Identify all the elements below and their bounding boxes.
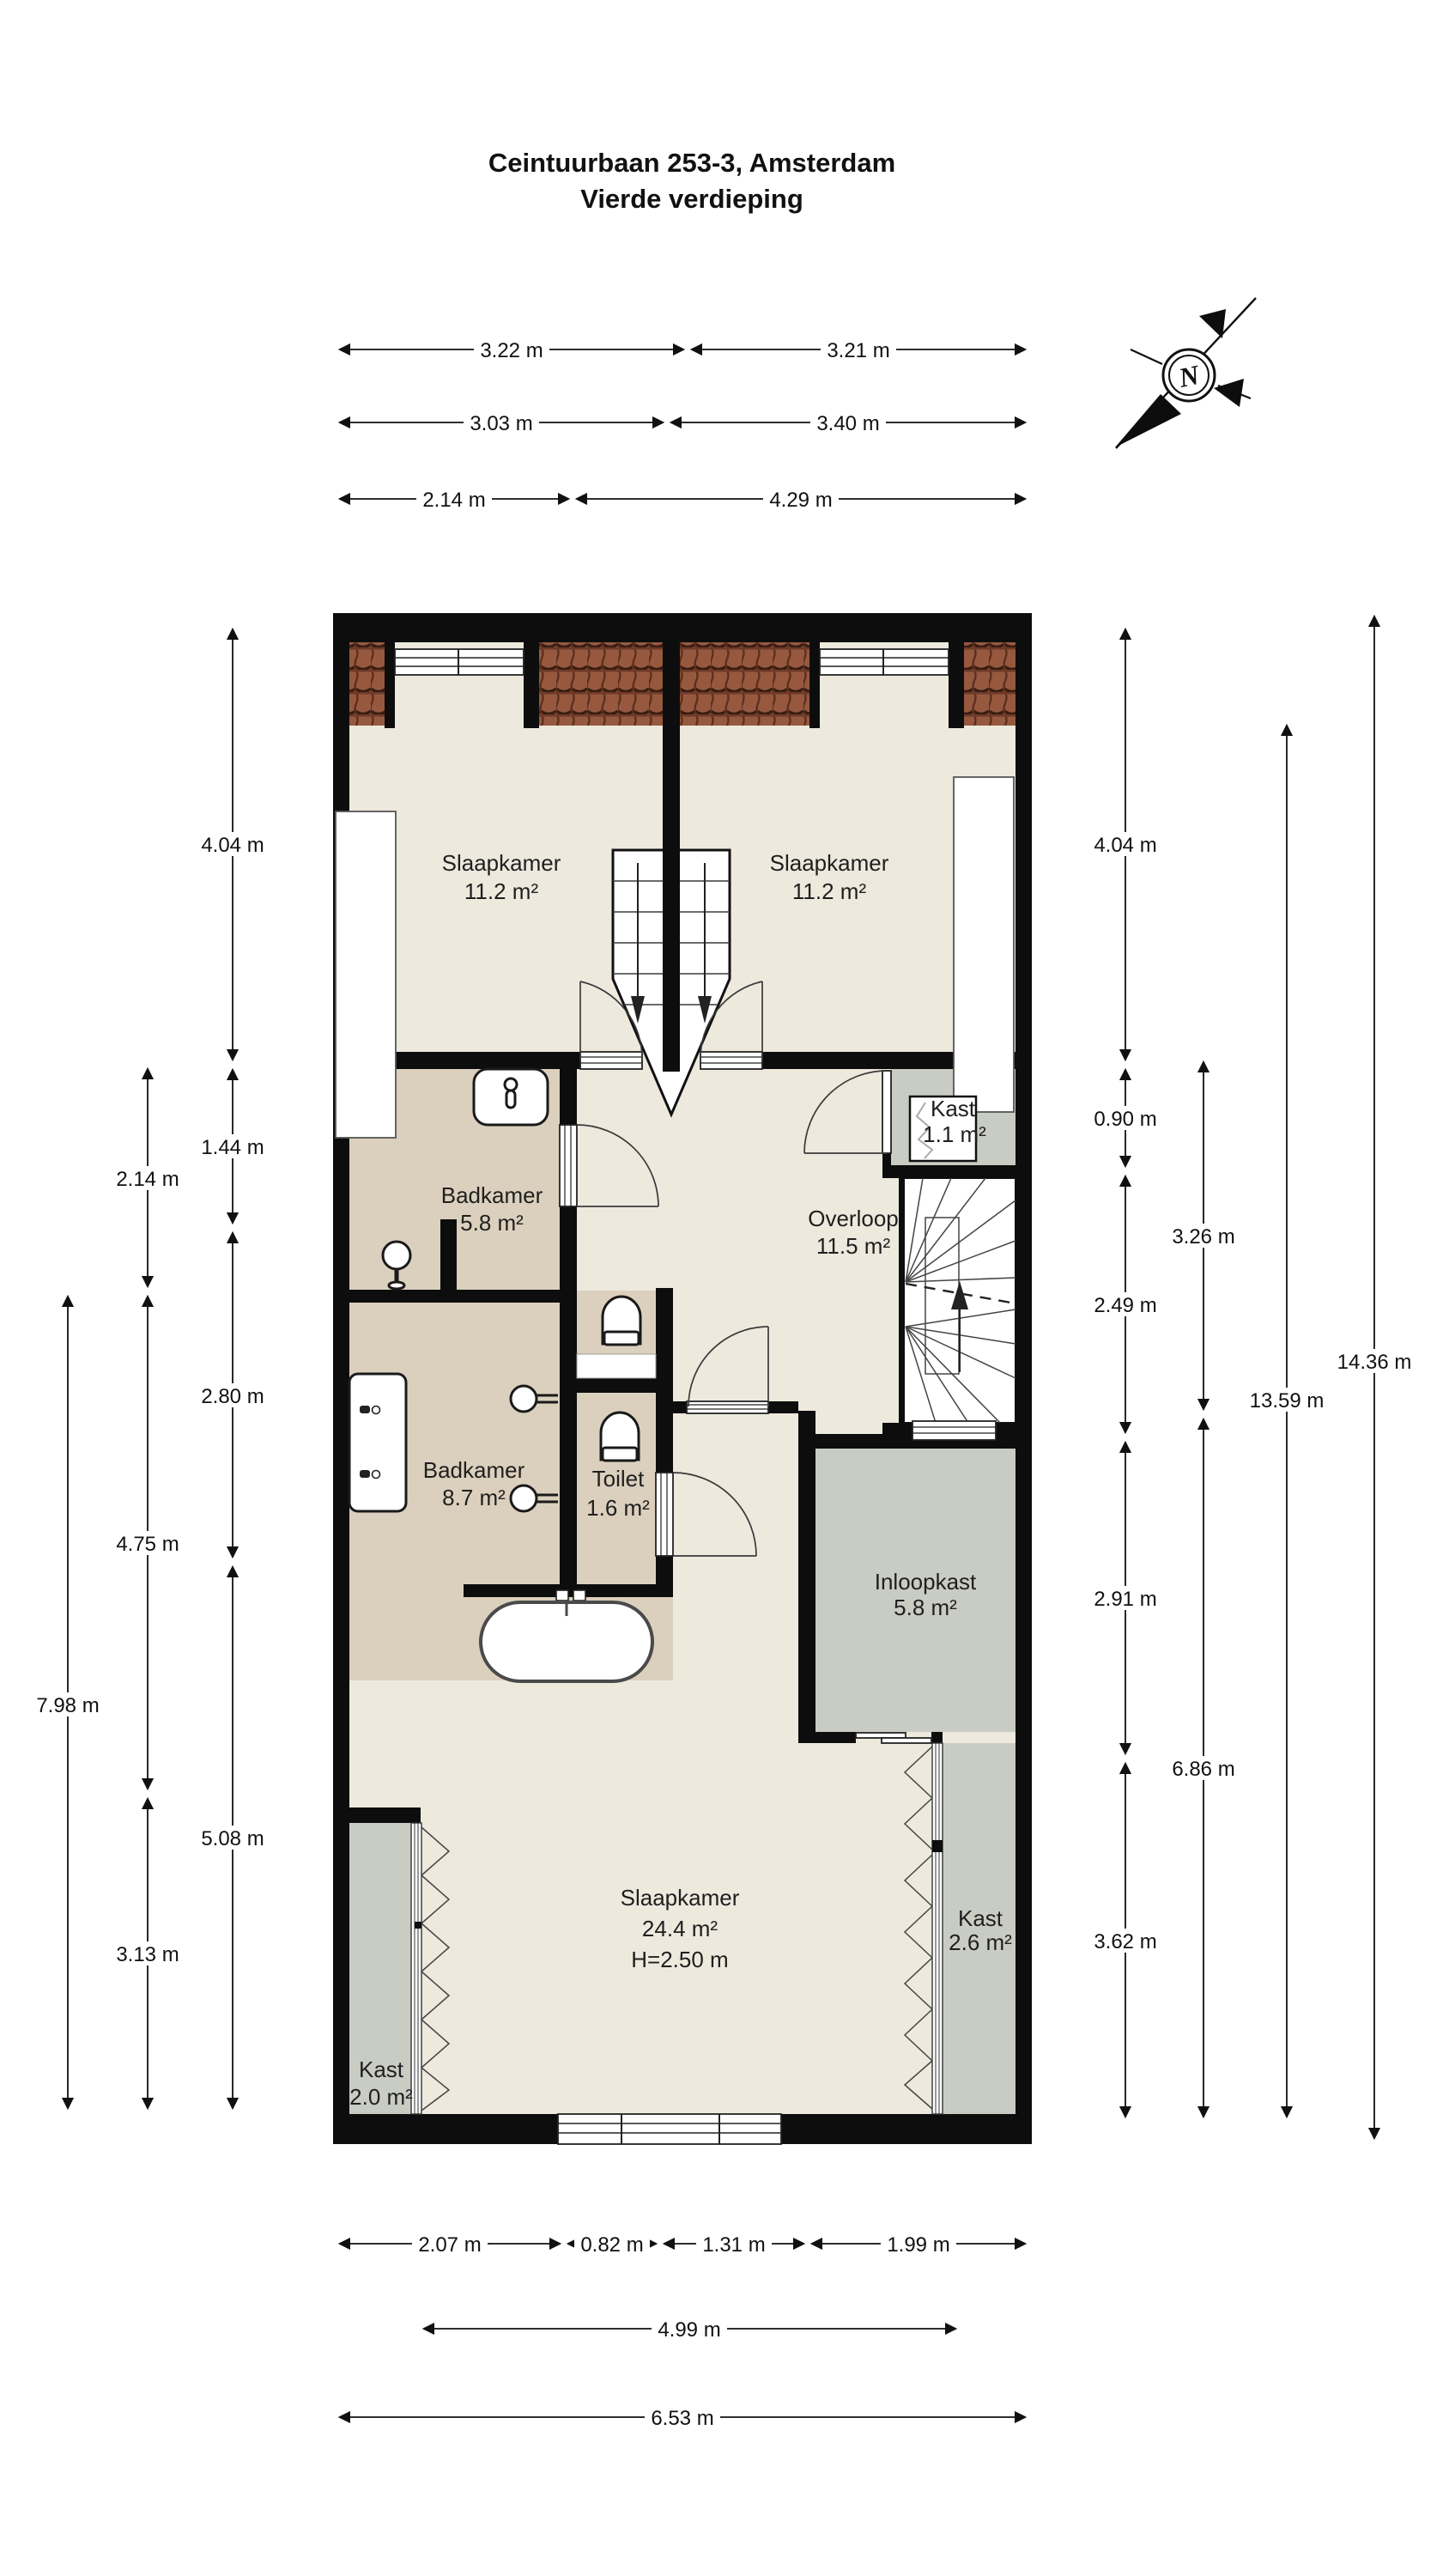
dim-bottom-6.53: 6.53 m bbox=[340, 2405, 1025, 2430]
svg-text:6.86 m: 6.86 m bbox=[1172, 1758, 1234, 1781]
dim-top-1: 3.22 m bbox=[340, 337, 683, 362]
svg-text:4.75 m: 4.75 m bbox=[116, 1533, 179, 1556]
svg-text:4.29 m: 4.29 m bbox=[769, 489, 832, 512]
label-slaapkamer-groot-height: H=2.50 m bbox=[631, 1947, 728, 1972]
dim-left-2.14: 2.14 m bbox=[110, 1069, 185, 1286]
label-kast-klein-name: Kast bbox=[931, 1096, 976, 1121]
svg-text:2.91 m: 2.91 m bbox=[1094, 1588, 1156, 1611]
label-badkamer-groot-area: 8.7 m² bbox=[442, 1485, 506, 1510]
dim-top-6: 4.29 m bbox=[577, 487, 1025, 512]
dimensions-right: 4.04 m 0.90 m 2.49 m 2.91 m 3.62 m 3.26 … bbox=[1088, 617, 1421, 2138]
label-toilet-area: 1.6 m² bbox=[586, 1495, 650, 1521]
dim-left-4.75: 4.75 m bbox=[110, 1297, 185, 1789]
svg-text:6.53 m: 6.53 m bbox=[651, 2407, 713, 2430]
dim-right-3.62: 3.62 m bbox=[1088, 1764, 1163, 2117]
label-kast-rechts-name: Kast bbox=[958, 1905, 1003, 1931]
dim-left-2.80: 2.80 m bbox=[195, 1233, 270, 1557]
label-slaapkamer-links-area: 11.2 m² bbox=[464, 878, 539, 904]
page-title-line1: Ceintuurbaan 253-3, Amsterdam bbox=[488, 148, 895, 178]
svg-text:7.98 m: 7.98 m bbox=[36, 1694, 99, 1717]
dormer-window-left bbox=[395, 649, 524, 675]
vanity-icon bbox=[349, 1374, 406, 1511]
winder-stairs bbox=[904, 1178, 1016, 1423]
dim-bottom-2.07: 2.07 m bbox=[340, 2232, 560, 2257]
svg-text:0.90 m: 0.90 m bbox=[1094, 1108, 1156, 1131]
label-badkamer-klein-area: 5.8 m² bbox=[460, 1210, 524, 1236]
label-overloop-name: Overloop bbox=[808, 1206, 899, 1231]
label-slaapkamer-rechts-name: Slaapkamer bbox=[770, 850, 889, 876]
label-kast-links-name: Kast bbox=[359, 2057, 404, 2082]
label-slaapkamer-groot-name: Slaapkamer bbox=[621, 1885, 740, 1911]
dim-right-2.91: 2.91 m bbox=[1088, 1443, 1163, 1753]
label-badkamer-groot-name: Badkamer bbox=[423, 1457, 525, 1483]
svg-text:3.03 m: 3.03 m bbox=[470, 412, 532, 435]
svg-text:1.44 m: 1.44 m bbox=[201, 1136, 264, 1159]
svg-text:3.13 m: 3.13 m bbox=[116, 1943, 179, 1966]
label-kast-links-area: 2.0 m² bbox=[349, 2084, 413, 2110]
dimensions-left: 4.04 m 1.44 m 2.80 m 5.08 m 2.14 m 4.75 … bbox=[30, 629, 270, 2108]
label-kast-rechts-area: 2.6 m² bbox=[949, 1929, 1012, 1955]
label-badkamer-klein-name: Badkamer bbox=[441, 1182, 543, 1208]
compass-icon: N bbox=[1115, 298, 1256, 448]
label-toilet-name: Toilet bbox=[592, 1466, 645, 1492]
svg-text:3.21 m: 3.21 m bbox=[827, 339, 889, 362]
dim-bottom-0.82: 0.82 m bbox=[568, 2232, 656, 2257]
sink-unit-icon bbox=[474, 1069, 548, 1125]
dim-left-7.98: 7.98 m bbox=[30, 1297, 106, 2108]
toilet-niche bbox=[577, 1354, 656, 1378]
dim-bottom-1.99: 1.99 m bbox=[812, 2232, 1025, 2257]
toilet-icon-lower bbox=[601, 1413, 639, 1461]
dim-right-4.04: 4.04 m bbox=[1088, 629, 1163, 1060]
svg-text:1.31 m: 1.31 m bbox=[702, 2233, 765, 2257]
svg-text:13.59 m: 13.59 m bbox=[1250, 1389, 1325, 1413]
toilet-icon-upper bbox=[603, 1297, 640, 1345]
dim-right-14.36: 14.36 m bbox=[1328, 617, 1421, 2138]
dim-right-0.90: 0.90 m bbox=[1088, 1070, 1163, 1166]
label-kast-klein-area: 1.1 m² bbox=[923, 1121, 986, 1147]
svg-text:4.99 m: 4.99 m bbox=[658, 2318, 720, 2342]
dim-top-5: 2.14 m bbox=[340, 487, 568, 512]
dormer-window-right bbox=[820, 649, 949, 675]
svg-text:4.04 m: 4.04 m bbox=[1094, 834, 1156, 857]
svg-text:1.99 m: 1.99 m bbox=[887, 2233, 949, 2257]
dim-left-5.08: 5.08 m bbox=[195, 1567, 270, 2108]
svg-text:3.62 m: 3.62 m bbox=[1094, 1930, 1156, 1953]
dim-right-13.59: 13.59 m bbox=[1240, 726, 1333, 2117]
bathtub-icon bbox=[481, 1590, 652, 1681]
label-slaapkamer-links-name: Slaapkamer bbox=[442, 850, 561, 876]
dim-bottom-4.99: 4.99 m bbox=[424, 2317, 955, 2342]
dimensions-top: 3.22 m 3.21 m 3.03 m 3.40 m 2.14 m 4.29 … bbox=[340, 337, 1025, 512]
dim-top-2: 3.21 m bbox=[692, 337, 1025, 362]
dimensions-bottom: 2.07 m 0.82 m 1.31 m 1.99 m 4.99 m 6.53 … bbox=[340, 2232, 1025, 2430]
dim-left-4.04: 4.04 m bbox=[195, 629, 270, 1060]
svg-text:2.14 m: 2.14 m bbox=[422, 489, 485, 512]
page-title-line2: Vierde verdieping bbox=[580, 184, 803, 214]
svg-text:2.80 m: 2.80 m bbox=[201, 1385, 264, 1408]
label-inloopkast-name: Inloopkast bbox=[875, 1569, 977, 1595]
stairwell-window bbox=[912, 1421, 996, 1440]
svg-text:3.40 m: 3.40 m bbox=[816, 412, 879, 435]
wall-recess-right bbox=[954, 777, 1014, 1112]
label-slaapkamer-rechts-area: 11.2 m² bbox=[792, 878, 867, 904]
svg-text:5.08 m: 5.08 m bbox=[201, 1827, 264, 1850]
dim-right-2.49: 2.49 m bbox=[1088, 1176, 1163, 1432]
svg-text:2.07 m: 2.07 m bbox=[418, 2233, 481, 2257]
svg-text:0.82 m: 0.82 m bbox=[580, 2233, 643, 2257]
dim-bottom-1.31: 1.31 m bbox=[664, 2232, 803, 2257]
svg-text:3.22 m: 3.22 m bbox=[480, 339, 543, 362]
svg-text:14.36 m: 14.36 m bbox=[1337, 1351, 1412, 1374]
dim-left-1.44: 1.44 m bbox=[195, 1070, 270, 1223]
svg-text:3.26 m: 3.26 m bbox=[1172, 1225, 1234, 1249]
svg-text:4.04 m: 4.04 m bbox=[201, 834, 264, 857]
label-inloopkast-area: 5.8 m² bbox=[894, 1595, 957, 1620]
dim-right-6.86: 6.86 m bbox=[1166, 1419, 1241, 2117]
svg-text:2.14 m: 2.14 m bbox=[116, 1168, 179, 1191]
svg-text:2.49 m: 2.49 m bbox=[1094, 1294, 1156, 1317]
dim-top-3: 3.03 m bbox=[340, 410, 663, 435]
dim-left-3.13: 3.13 m bbox=[110, 1799, 185, 2108]
dim-top-4: 3.40 m bbox=[671, 410, 1025, 435]
floorplan-svg: Ceintuurbaan 253-3, Amsterdam Vierde ver… bbox=[0, 0, 1449, 2576]
bottom-window bbox=[558, 2114, 781, 2144]
label-slaapkamer-groot-area: 24.4 m² bbox=[642, 1916, 718, 1941]
wall-recess-left bbox=[336, 811, 396, 1138]
label-overloop-area: 11.5 m² bbox=[816, 1233, 891, 1259]
dim-right-3.26: 3.26 m bbox=[1166, 1062, 1241, 1409]
